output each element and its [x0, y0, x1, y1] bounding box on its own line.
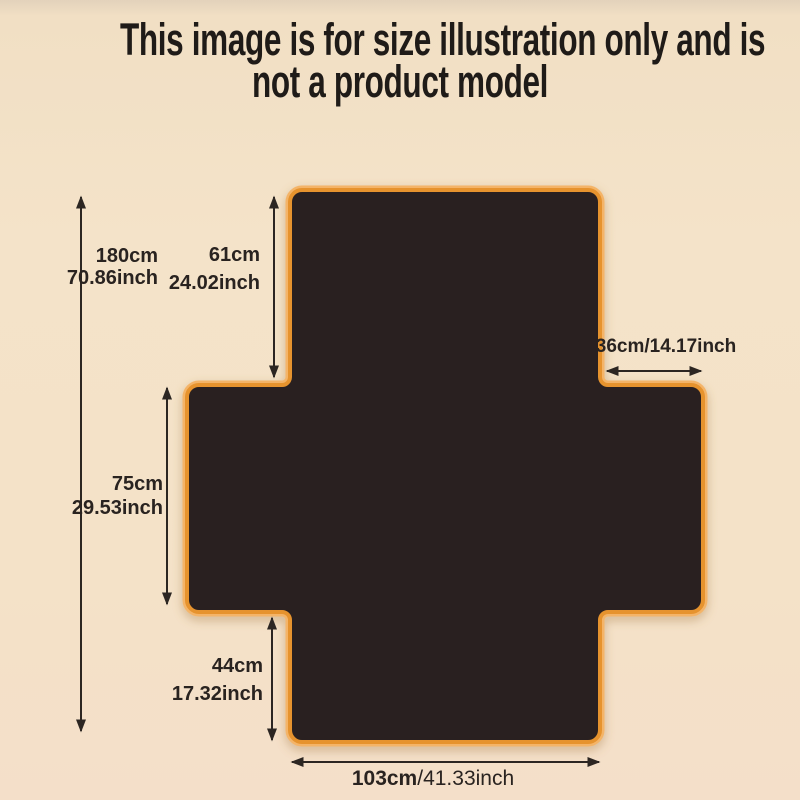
label-top-section-inch: 24.02inch	[120, 269, 260, 297]
label-bottom-section-height: 44cm 17.32inch	[123, 652, 263, 708]
label-right-wing-width: 36cm/14.17inch	[566, 336, 766, 358]
label-top-section-height: 61cm 24.02inch	[120, 241, 260, 297]
label-right-wing-text: 36cm/14.17inch	[596, 336, 736, 357]
label-bottom-width-cm: 103cm	[352, 767, 417, 790]
label-bottom-section-inch: 17.32inch	[123, 680, 263, 708]
label-bottom-width-inch: /41.33inch	[417, 767, 514, 790]
cover-shape	[187, 190, 703, 742]
label-middle-section-cm: 75cm	[23, 472, 163, 496]
size-illustration-page: This image is for size illustration only…	[0, 0, 800, 800]
label-bottom-width: 103cm/41.33inch	[308, 768, 558, 790]
label-middle-section-inch: 29.53inch	[23, 496, 163, 520]
label-top-section-cm: 61cm	[120, 241, 260, 269]
label-middle-section-height: 75cm 29.53inch	[23, 472, 163, 520]
label-bottom-section-cm: 44cm	[123, 652, 263, 680]
size-diagram-canvas	[0, 0, 800, 800]
